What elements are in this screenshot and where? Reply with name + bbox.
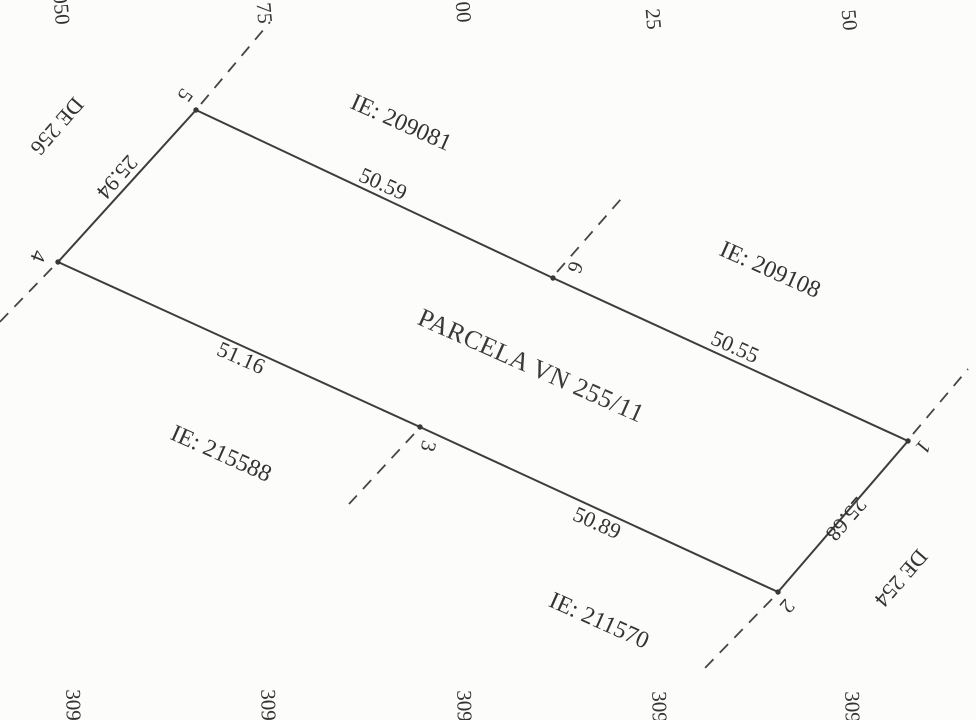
- vertex-dot-6: [550, 275, 555, 280]
- vertex-dot-5: [193, 107, 198, 112]
- grid-label-bottom-3: 309: [453, 690, 475, 720]
- tie-line-5: [201, 22, 270, 104]
- grid-label-bottom-5: 309: [841, 691, 863, 720]
- tie-line-4: [0, 268, 52, 330]
- grid-label-top-4: 25: [642, 8, 665, 31]
- grid-label-top-5: 50: [838, 9, 861, 32]
- tie-line-3: [349, 434, 414, 504]
- tie-line-1: [913, 369, 968, 434]
- grid-label-bottom-1: 309: [62, 689, 84, 720]
- grid-label-top-2: 75: [253, 2, 276, 25]
- grid-label-top-1: 050: [49, 0, 73, 26]
- cadastral-plan-canvas: PARCELA VN 255/11 IE: 209081IE: 209108IE…: [0, 0, 976, 720]
- vertex-dot-2: [775, 589, 780, 594]
- vertex-dot-3: [417, 424, 422, 429]
- grid-label-top-3: 00: [452, 1, 475, 24]
- vertex-dot-4: [55, 259, 60, 264]
- grid-label-bottom-2: 309: [257, 689, 279, 720]
- grid-label-bottom-4: 309: [648, 691, 670, 720]
- tie-line-2: [703, 599, 772, 670]
